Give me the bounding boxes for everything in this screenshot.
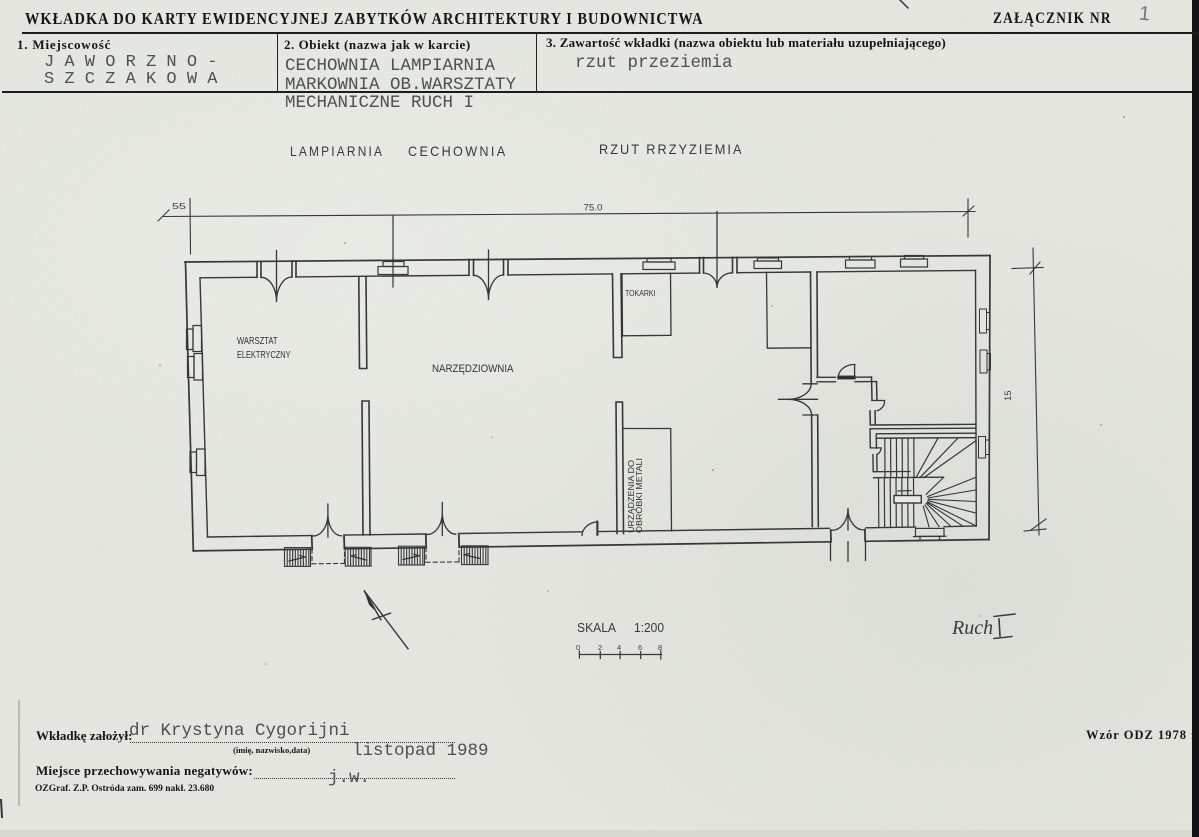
svg-text:15: 15 [1003, 390, 1014, 401]
svg-text:8: 8 [658, 643, 662, 652]
svg-text:4: 4 [617, 643, 621, 652]
svg-text:75.0: 75.0 [584, 203, 603, 213]
svg-text:OBRÓBKI METALI: OBRÓBKI METALI [634, 458, 644, 533]
svg-text:NARZĘDZIOWNIA: NARZĘDZIOWNIA [432, 363, 514, 375]
svg-text:6: 6 [638, 643, 642, 652]
svg-text:SKALA: SKALA [577, 620, 616, 635]
svg-text:WARSZTAT: WARSZTAT [237, 335, 278, 347]
svg-text:0: 0 [576, 643, 580, 652]
svg-text:ELEKTRYCZNY: ELEKTRYCZNY [237, 349, 291, 361]
svg-text:Ruch: Ruch [951, 617, 993, 639]
svg-text:55: 55 [172, 201, 186, 211]
svg-text:1:200: 1:200 [634, 620, 664, 635]
svg-text:TOKARKI: TOKARKI [625, 288, 656, 298]
svg-text:2: 2 [598, 643, 602, 652]
